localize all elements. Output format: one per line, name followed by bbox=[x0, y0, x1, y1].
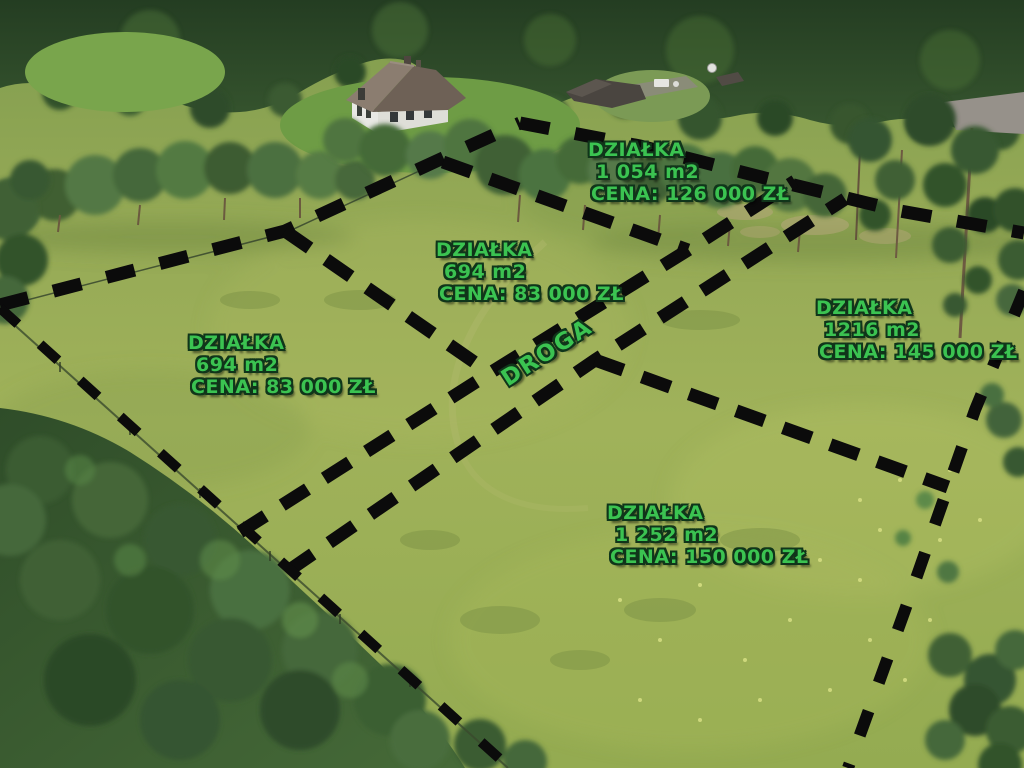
plot-area: 694 m2 bbox=[436, 261, 624, 283]
plot-name: DZIAŁKA bbox=[816, 297, 1018, 319]
plot-area: 1 252 m2 bbox=[607, 524, 809, 546]
plot-name: DZIAŁKA bbox=[188, 332, 376, 354]
plot-price: CENA: 83 000 ZŁ bbox=[436, 283, 624, 305]
plot-price: CENA: 150 000 ZŁ bbox=[607, 546, 809, 568]
plot-label-north: DZIAŁKA 1 054 m2 CENA: 126 000 ZŁ bbox=[588, 139, 790, 205]
plot-label-center: DZIAŁKA 694 m2 CENA: 83 000 ZŁ bbox=[436, 239, 624, 305]
plot-area: 1216 m2 bbox=[816, 319, 1018, 341]
plot-name: DZIAŁKA bbox=[607, 502, 809, 524]
satellite-dish bbox=[708, 64, 717, 73]
white-car bbox=[654, 79, 669, 87]
aerial-plot-photo: DZIAŁKA 1 054 m2 CENA: 126 000 ZŁ DZIAŁK… bbox=[0, 0, 1024, 768]
plot-label-west: DZIAŁKA 694 m2 CENA: 83 000 ZŁ bbox=[188, 332, 376, 398]
plot-label-east: DZIAŁKA 1216 m2 CENA: 145 000 ZŁ bbox=[816, 297, 1018, 363]
plot-name: DZIAŁKA bbox=[588, 139, 790, 161]
plot-area: 1 054 m2 bbox=[588, 161, 790, 183]
plot-price: CENA: 145 000 ZŁ bbox=[816, 341, 1018, 363]
plot-price: CENA: 83 000 ZŁ bbox=[188, 376, 376, 398]
plot-price: CENA: 126 000 ZŁ bbox=[588, 183, 790, 205]
plot-label-south: DZIAŁKA 1 252 m2 CENA: 150 000 ZŁ bbox=[607, 502, 809, 568]
plot-name: DZIAŁKA bbox=[436, 239, 624, 261]
plot-area: 694 m2 bbox=[188, 354, 376, 376]
